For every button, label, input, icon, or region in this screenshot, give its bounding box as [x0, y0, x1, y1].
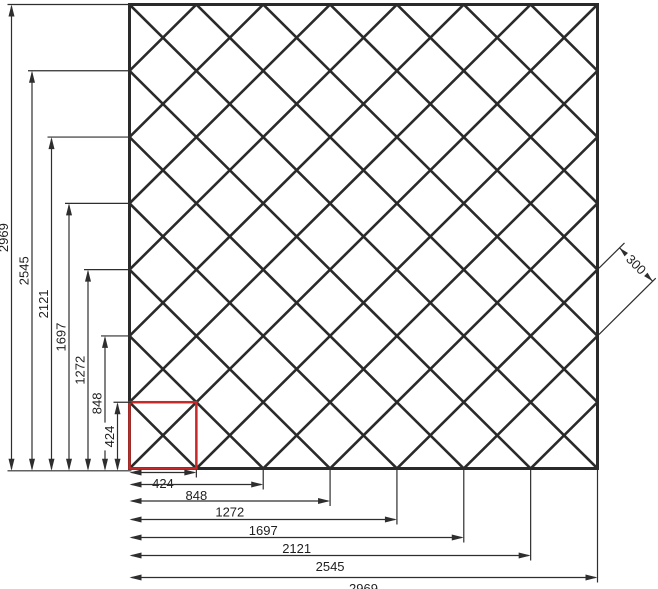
- dimension-label: 2545: [316, 559, 345, 574]
- bottom-dimension-label-424: 424: [149, 476, 177, 491]
- dimension-label: 1272: [215, 505, 244, 520]
- dimension-label: 424: [102, 426, 117, 448]
- bottom-dimension-label-2121: 2121: [279, 541, 314, 556]
- dimension-label: 1697: [249, 523, 278, 538]
- dimension-label: 1272: [73, 356, 88, 385]
- dimension-label: 2545: [17, 256, 32, 285]
- dimension-label: 2969: [0, 223, 11, 252]
- lattice-drawing-svg: 2969254521211697127284842442484812721697…: [0, 0, 658, 589]
- left-dimension-label-2969: 2969: [0, 220, 11, 255]
- left-dimension-label-1272: 1272: [73, 353, 88, 388]
- bottom-dimension-label-2969: 2969: [346, 581, 381, 589]
- bottom-dimension-label-1697: 1697: [246, 523, 281, 538]
- left-dimension-label-848: 848: [90, 389, 105, 417]
- left-dimension-label-1697: 1697: [54, 319, 69, 354]
- left-dimension-label-2545: 2545: [17, 253, 32, 288]
- dimension-label: 2121: [282, 541, 311, 556]
- dimension-label: 424: [152, 476, 174, 491]
- technical-drawing-canvas: 2969254521211697127284842442484812721697…: [0, 0, 658, 589]
- dimension-label: 2969: [349, 581, 378, 589]
- dimension-label: 2121: [36, 289, 51, 318]
- dimension-label: 1697: [54, 323, 69, 352]
- bottom-dimension-label-1272: 1272: [212, 505, 247, 520]
- bottom-dimension-label-2545: 2545: [312, 559, 347, 574]
- drawing-background: [0, 0, 658, 589]
- left-dimension-label-2121: 2121: [36, 286, 51, 321]
- left-dimension-label-424: 424: [102, 423, 117, 451]
- dimension-label: 848: [90, 393, 105, 415]
